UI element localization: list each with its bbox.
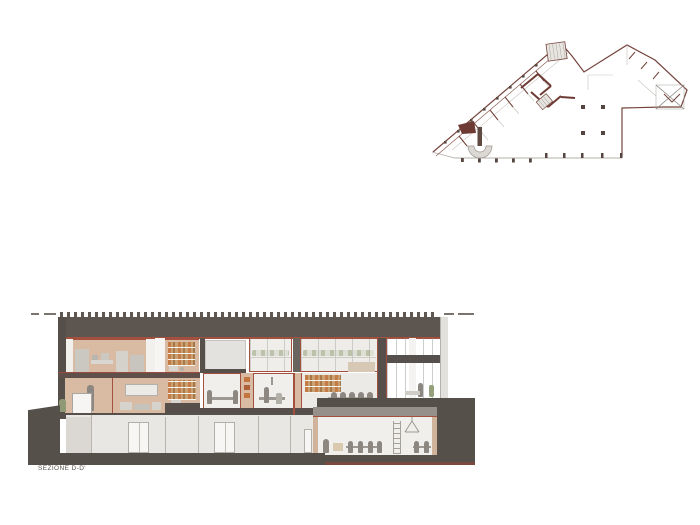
planting bbox=[303, 350, 374, 356]
chair bbox=[368, 441, 373, 453]
chair bbox=[377, 441, 382, 453]
shelving bbox=[130, 355, 144, 372]
wall-screen bbox=[125, 384, 158, 396]
building-section: SEZIONE D-D' bbox=[28, 305, 480, 475]
table bbox=[134, 404, 150, 410]
counter bbox=[406, 391, 420, 395]
foundation-line bbox=[300, 462, 475, 465]
mullion-wall bbox=[293, 338, 300, 372]
desk-item bbox=[92, 355, 98, 360]
plant bbox=[59, 399, 66, 412]
plant bbox=[429, 385, 434, 397]
duct-wall bbox=[155, 338, 165, 372]
meeting-room bbox=[253, 373, 294, 408]
plan-curved-stair bbox=[458, 121, 492, 158]
left-berm bbox=[28, 404, 60, 465]
person bbox=[233, 390, 238, 404]
planting bbox=[252, 350, 289, 356]
wall bbox=[91, 415, 92, 453]
bookshelf bbox=[168, 380, 196, 400]
niche-box bbox=[244, 377, 250, 382]
desk bbox=[91, 360, 113, 364]
sofa bbox=[152, 402, 161, 410]
bookshelf bbox=[305, 375, 341, 393]
ladder bbox=[393, 421, 401, 454]
ground-slab bbox=[30, 453, 325, 465]
narrow-door bbox=[304, 429, 312, 453]
chair bbox=[358, 441, 363, 453]
person bbox=[207, 390, 212, 404]
counter bbox=[333, 443, 343, 451]
void-panel bbox=[205, 340, 246, 370]
chair bbox=[276, 393, 282, 404]
chair bbox=[424, 441, 429, 453]
chair bbox=[348, 441, 353, 453]
roof-slab bbox=[58, 317, 440, 337]
drawing-canvas: SEZIONE D-D' bbox=[0, 0, 700, 525]
ground-floor bbox=[66, 415, 325, 453]
upper-wall-strip bbox=[66, 339, 73, 372]
niche-box bbox=[244, 393, 250, 398]
desk-item bbox=[101, 353, 109, 360]
double-door bbox=[128, 422, 149, 453]
roof-dash bbox=[44, 313, 56, 315]
divider-wall bbox=[294, 373, 302, 408]
roof-dash bbox=[444, 313, 454, 315]
cabinet bbox=[75, 349, 89, 372]
basement-wall-strip bbox=[432, 417, 437, 455]
low-cabinet bbox=[348, 362, 375, 372]
niche-box bbox=[244, 385, 250, 390]
plan-facade-columns bbox=[444, 53, 551, 144]
balustrade-line bbox=[301, 357, 376, 358]
plan-right-wing bbox=[588, 45, 684, 109]
office-chair bbox=[323, 439, 329, 453]
ground-room-shade bbox=[66, 417, 91, 453]
meeting-table bbox=[210, 397, 234, 400]
basement-wall-strip bbox=[313, 417, 318, 455]
bookshelf bbox=[168, 342, 195, 366]
door-leaf-line bbox=[139, 423, 140, 452]
key-floor-plan bbox=[428, 30, 692, 172]
sofa bbox=[120, 402, 132, 410]
shelving bbox=[116, 351, 128, 372]
door-leaf-line bbox=[225, 423, 226, 452]
plan-outline bbox=[432, 43, 687, 158]
section-label: SEZIONE D-D' bbox=[38, 465, 86, 472]
wall bbox=[290, 416, 291, 453]
plan-stair-top bbox=[546, 42, 567, 61]
chair bbox=[414, 441, 419, 453]
table bbox=[169, 366, 178, 371]
basement-ceiling-band bbox=[313, 407, 437, 416]
person bbox=[264, 387, 269, 403]
roof-dash bbox=[458, 313, 474, 315]
atrium-beam bbox=[387, 355, 444, 363]
pendant-stem bbox=[271, 377, 273, 385]
double-door bbox=[214, 422, 235, 453]
atrium-column bbox=[409, 338, 416, 398]
wall bbox=[165, 417, 166, 453]
pendant-lamp bbox=[402, 416, 422, 435]
chair bbox=[180, 367, 184, 371]
wall bbox=[198, 416, 199, 453]
balustrade-line bbox=[250, 357, 291, 358]
roof-dash bbox=[31, 313, 39, 315]
plan-stair-mid bbox=[536, 94, 552, 110]
upper-wall-strip bbox=[146, 339, 155, 372]
wall bbox=[258, 416, 259, 453]
